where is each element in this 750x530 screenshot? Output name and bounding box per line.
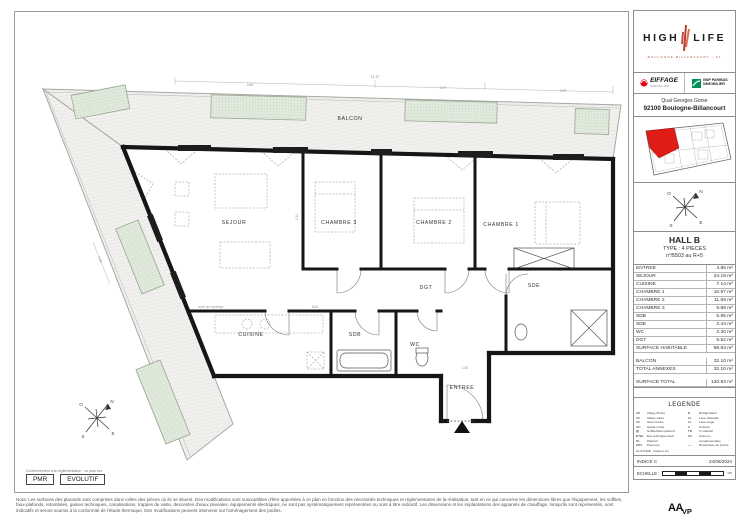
room-label-sdb: SDB [349,332,361,338]
bnp-logo: BNP PARIBAS IMMOBILIER [685,73,735,93]
compass-o: O [79,402,83,407]
scale-unit: cm [727,471,732,475]
room-label-sejour: SEJOUR [222,220,247,226]
table-row: SDB5.95 m² [634,313,735,321]
brush-stroke-icon [681,25,691,51]
architect-logo: AAVP [668,498,693,516]
floor-plan: BALCON SEJOUR CHAMBRE 3 CHAMBRE 2 CHAMBR… [15,12,628,492]
table-row: TOTAL ANNEXES32.10 m² [634,366,735,374]
legend-cloture: CLOTURE : hauteur 1m [636,449,669,454]
panel-compass-e: E [699,220,702,226]
room-label-balcon: BALCON [338,116,363,122]
room-label-chambre2: CHAMBRE 2 [416,220,452,226]
scale-label: ECHELLE : [637,471,659,476]
table-row: BALCON32.10 m² [634,358,735,366]
compass-e: E [111,431,114,436]
balcony-area [43,89,621,460]
eiffage-name: EIFFAGE [650,78,678,85]
panel-compass-icon: N O S E [635,183,734,231]
logo-word-high: HIGH [643,32,679,44]
compass-icon [85,404,111,432]
title-block: HIGH LIFE BOULOGNE-BILLANCOURT • 92 EIFF… [633,11,736,480]
unit-title: HALL B TYPE : 4 PIECES n°B503 au R+5 [633,231,736,265]
compass-n: N [110,399,113,404]
dim-sejour: 3.11 [295,214,299,220]
evolutif-badge: EVOLUTIF [60,474,105,485]
beam-line-icon: ---- [688,443,699,448]
scale-row: ECHELLE : cm [633,466,736,480]
legend-title: LEGENDE [636,402,733,408]
dim-seg1: 3.60 [247,83,254,87]
table-row: CHAMBRE 39.88 m² [634,305,735,313]
key-plan-drawing [635,118,734,181]
address-street: Quai Georges Gorse [661,98,707,104]
unit-type: TYPE : 4 PIECES [634,246,735,252]
logo-subtitle: BOULOGNE-BILLANCOURT • 92 [648,55,722,59]
logo-word-life: LIFE [693,32,726,44]
floor-plan-frame: BALCON SEJOUR CHAMBRE 3 CHAMBRE 2 CHAMBR… [14,11,629,493]
panel-compass-o: O [667,191,671,197]
room-label-chambre3: CHAMBRE 3 [321,220,357,226]
table-row: SEJOUR24.18 m² [634,273,735,281]
room-label-sde: SDE [528,283,540,289]
plan-sheet: BALCON SEJOUR CHAMBRE 3 CHAMBRE 2 CHAMBR… [0,0,750,530]
room-label-chambre1: CHAMBRE 1 [483,222,519,228]
revision-date: 24/06/2024 [709,459,732,464]
dim-entree: 1.90 [462,366,469,370]
table-row: WC2.30 m² [634,329,735,337]
key-plan [633,116,736,183]
architect-aa: AA [668,502,683,514]
bnp-icon [692,79,701,88]
room-label-dgt: DGT [420,285,433,291]
room-label-wc: WC [410,342,420,348]
entry-marker [447,421,473,433]
project-address: Quai Georges Gorse 92100 Boulogne-Billan… [633,93,736,117]
scale-bar [662,471,724,476]
dim-seg3: 2.67 [560,89,567,93]
compass-s: S [81,434,84,439]
bnp-sub: IMMOBILIER [703,83,727,87]
compliance-note: Conformément à la réglementation , ce pl… [26,469,105,473]
panel-compass: N O S E [633,182,736,232]
dim-total-top: 11.37 [371,75,379,79]
table-row: CHAMBRE 110.97 m² [634,289,735,297]
panel-compass-n: N [699,189,703,195]
room-label-cuisine: CUISINE [238,332,263,338]
indice-label: INDICE C [637,459,657,464]
architect-vp: VP [682,507,692,516]
pmr-badge: PMR [26,474,54,485]
table-row-total: SURFACE TOTAL120.93 m² [634,379,735,387]
annotation-carrelage: arrêt de carrelage [198,305,223,309]
hall-name: HALL B [634,235,735,245]
eiffage-icon [640,79,648,87]
developer-logos: EIFFAGE IMMOBILIER BNP PARIBAS IMMOBILIE… [633,72,736,94]
table-row: ENTREE4.86 m² [634,265,735,273]
nota-text: Nota: Les surfaces des placards sont com… [16,497,624,513]
dim-cuisine: 6.61 [312,305,319,309]
room-label-entree: ENTREE [450,385,475,391]
dim-seg2: 2.47 [440,86,447,90]
areas-table: ENTREE4.86 m² SEJOUR24.18 m² CUISINE7.14… [633,264,736,388]
table-row: DGT9.52 m² [634,337,735,345]
eiffage-sub: IMMOBILIER [650,85,678,88]
dim-diag: 3.51 [97,256,103,264]
highlife-logo: HIGH LIFE BOULOGNE-BILLANCOURT • 92 [633,10,736,73]
legend: LEGENDE APAllège Pleine AVAllège vitrée … [633,397,736,456]
table-row: CUISINE7.14 m² [634,281,735,289]
table-row: SDE2.44 m² [634,321,735,329]
entry-arrow-icon [454,421,470,433]
eiffage-logo: EIFFAGE IMMOBILIER [634,73,685,93]
table-row: CHAMBRE 211.59 m² [634,297,735,305]
compliance-block: Conformément à la réglementation , ce pl… [26,469,105,485]
unit-number: n°B503 au R+5 [634,253,735,259]
address-city: 92100 Boulogne-Billancourt [644,105,726,112]
panel-compass-s: S [669,223,672,229]
table-row-habitable: SURFACE HABITABLE88.83 m² [634,345,735,353]
